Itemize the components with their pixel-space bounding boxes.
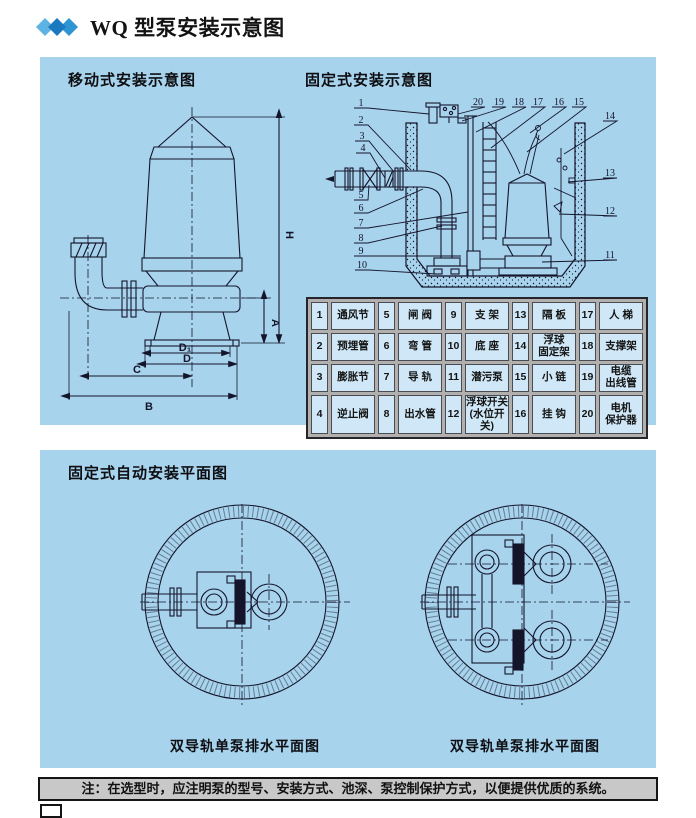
part-number-cell: 3 (311, 364, 328, 392)
callout-number: 2 (359, 115, 364, 126)
part-name-cell: 小 链 (532, 364, 576, 392)
auto-install-plan-title: 固定式自动安装平面图 (68, 462, 228, 483)
control-box (440, 105, 466, 123)
part-number-cell: 18 (579, 333, 596, 361)
dim-label-d: D (183, 353, 191, 365)
plan-pump-units (472, 535, 571, 674)
inlet-pipe-assembly (325, 168, 421, 190)
callout-number: 15 (574, 97, 584, 108)
callout-number: 5 (359, 190, 364, 201)
part-number-cell: 15 (512, 364, 529, 392)
part-number-cell: 1 (311, 302, 328, 330)
part-number-cell: 2 (311, 333, 328, 361)
part-number-cell: 7 (378, 364, 395, 392)
parts-table: 1通风节5闸 阀9支 架13隔 板17人 梯2预埋管6弯 管10底 座14浮球 … (306, 297, 648, 439)
vent-pipe (426, 103, 440, 123)
callout-leader (354, 108, 429, 114)
part-number-cell: 4 (311, 395, 328, 434)
left-plan-caption: 双导轨单泵排水平面图 (140, 736, 350, 756)
dim-label-a: A (269, 319, 281, 327)
installation-diagrams-panel: 移动式安装示意图 固定式安装示意图 (40, 57, 656, 425)
part-name-cell: 导 轨 (398, 364, 442, 392)
callout-leader (354, 226, 442, 243)
part-name-cell: 潜污泵 (465, 364, 509, 392)
table-row: 4逆止阀8出水管12浮球开关 (水位开关)16挂 钩20电机 保护器 (311, 395, 643, 434)
diamonds-icon (35, 17, 81, 37)
callout-number: 9 (359, 246, 364, 257)
part-number-cell: 19 (579, 364, 596, 392)
part-number-cell: 6 (378, 333, 395, 361)
submersible-pump (467, 174, 557, 275)
callout-number: 3 (360, 131, 365, 142)
callout-leader (530, 107, 566, 133)
part-name-cell: 通风节 (331, 302, 375, 330)
part-number-cell: 20 (579, 395, 596, 434)
part-name-cell: 逆止阀 (331, 395, 375, 434)
callout-number: 20 (473, 97, 483, 108)
callout-number: 1 (359, 98, 364, 109)
part-number-cell: 8 (378, 395, 395, 434)
selection-note: 注：在选型时，应注明泵的型号、安装方式、池深、泵控制保护方式，以便提供优质的系统… (38, 777, 658, 801)
callout-leader (476, 107, 526, 132)
part-number-cell: 5 (378, 302, 395, 330)
part-name-cell: 隔 板 (532, 302, 576, 330)
callout-number: 17 (533, 97, 543, 108)
callout-number: 16 (554, 97, 564, 108)
part-name-cell: 人 梯 (599, 302, 643, 330)
table-row: 3膨胀节7导 轨11潜污泵15小 链19电缆 出线管 (311, 364, 643, 392)
part-name-cell: 预埋管 (331, 333, 375, 361)
part-number-cell: 10 (445, 333, 462, 361)
callout-number: 12 (605, 206, 615, 217)
page-corner-box (40, 804, 62, 818)
callout-number: 4 (361, 143, 366, 154)
part-name-cell: 挂 钩 (532, 395, 576, 434)
dim-label-h: H (283, 231, 295, 239)
mobile-install-title: 移动式安装示意图 (68, 69, 196, 90)
part-number-cell: 17 (579, 302, 596, 330)
part-name-cell: 支撑架 (599, 333, 643, 361)
right-plan-caption: 双导轨单泵排水平面图 (420, 736, 630, 756)
part-number-cell: 13 (512, 302, 529, 330)
flow-arrow-icon (325, 176, 334, 182)
callout-number: 14 (605, 111, 615, 122)
part-name-cell: 弯 管 (398, 333, 442, 361)
plan-view-single-pump (140, 502, 350, 712)
part-name-cell: 浮球开关 (水位开关) (465, 395, 509, 434)
callout-number: 13 (605, 168, 615, 179)
mobile-pump-diagram: H A D₁ D C B (45, 95, 305, 425)
fixed-pump-diagram: 1234567891020191817161514131211 (310, 90, 650, 302)
table-row: 2预埋管6弯 管10底 座14浮球 固定架18支撑架 (311, 333, 643, 361)
part-number-cell: 11 (445, 364, 462, 392)
callout-leader (564, 121, 617, 154)
callout-number: 8 (359, 233, 364, 244)
callout-number: 7 (359, 218, 364, 229)
plan-view-panel: 固定式自动安装平面图 (40, 450, 656, 768)
discharge-elbow (71, 238, 143, 317)
part-number-cell: 9 (445, 302, 462, 330)
part-name-cell: 浮球 固定架 (532, 333, 576, 361)
page-title: WQ 型泵安装示意图 (90, 12, 285, 42)
part-name-cell: 支 架 (465, 302, 509, 330)
part-number-cell: 14 (512, 333, 529, 361)
plan-view-dual-pump (420, 502, 630, 712)
fixed-install-title: 固定式安装示意图 (305, 69, 433, 90)
ladder (483, 122, 496, 240)
callout-leader (458, 107, 485, 114)
callout-leader (462, 107, 506, 121)
part-number-cell: 16 (512, 395, 529, 434)
float-switch-frame (554, 148, 576, 256)
part-number-cell: 12 (445, 395, 462, 434)
part-name-cell: 电机 保护器 (599, 395, 643, 434)
callout-number: 19 (494, 97, 504, 108)
dim-label-c: C (133, 364, 141, 376)
part-name-cell: 闸 阀 (398, 302, 442, 330)
callout-number: 6 (359, 203, 364, 214)
table-row: 1通风节5闸 阀9支 架13隔 板17人 梯 (311, 302, 643, 330)
part-name-cell: 底 座 (465, 333, 509, 361)
callout-number: 10 (357, 260, 367, 271)
plan-pump-unit (197, 572, 287, 630)
riser-pipe-and-base (421, 171, 467, 276)
page-header: WQ 型泵安装示意图 (35, 12, 285, 42)
part-name-cell: 出水管 (398, 395, 442, 434)
callout-number: 18 (514, 97, 524, 108)
callout-number: 11 (605, 250, 615, 261)
part-name-cell: 膨胀节 (331, 364, 375, 392)
part-name-cell: 电缆 出线管 (599, 364, 643, 392)
dim-label-b: B (145, 401, 153, 413)
